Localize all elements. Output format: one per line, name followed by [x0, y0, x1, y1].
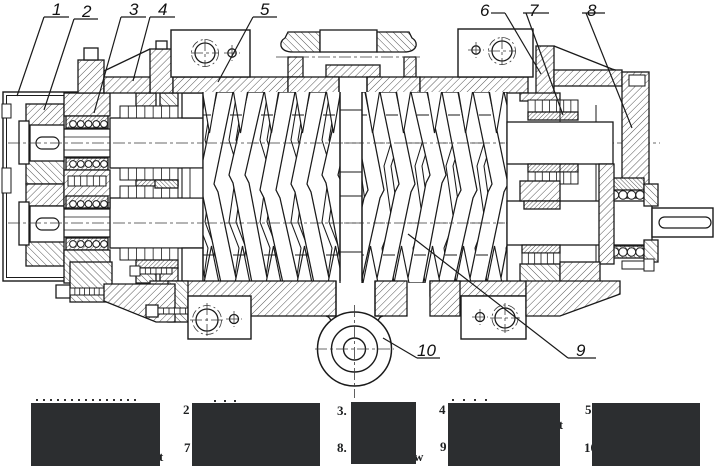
svg-text:6: 6 — [480, 1, 490, 20]
svg-text:1: 1 — [52, 0, 61, 19]
svg-text:8: 8 — [587, 1, 597, 20]
svg-text:2: 2 — [81, 2, 92, 21]
svg-text:7: 7 — [529, 1, 539, 20]
svg-text:5: 5 — [260, 0, 270, 19]
svg-text:9: 9 — [576, 341, 586, 360]
svg-text:4: 4 — [158, 0, 167, 19]
svg-text:10: 10 — [417, 341, 436, 360]
svg-text:3: 3 — [129, 0, 139, 19]
